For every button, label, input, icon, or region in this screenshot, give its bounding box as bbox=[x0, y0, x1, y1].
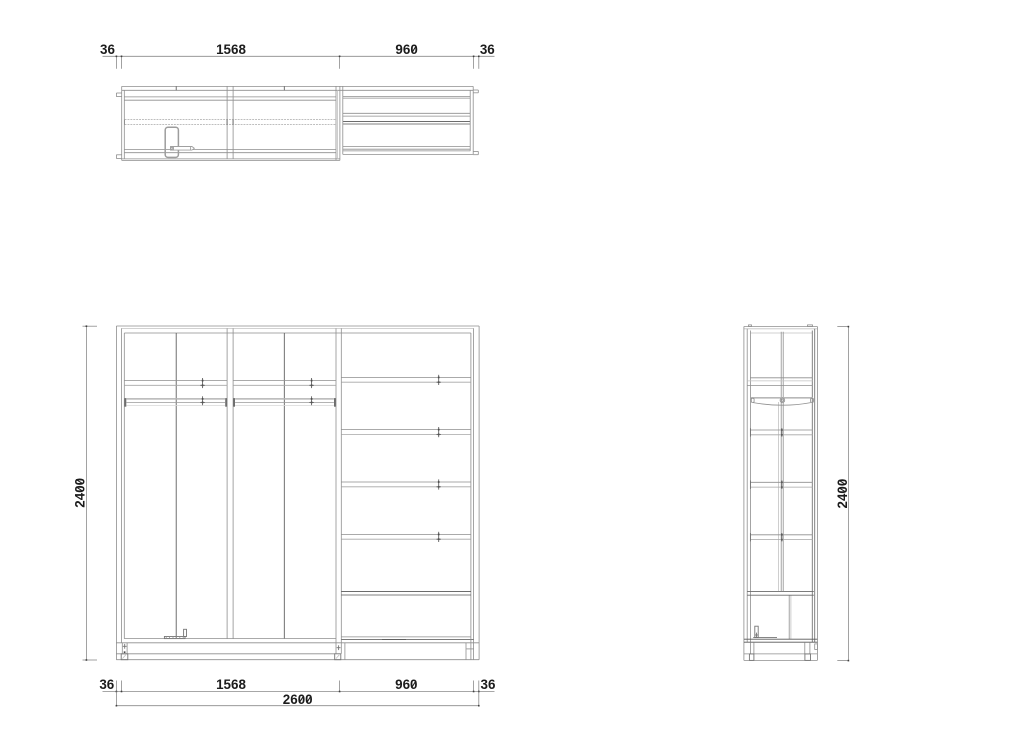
svg-text:36: 36 bbox=[99, 677, 114, 692]
svg-text:36: 36 bbox=[481, 677, 496, 692]
svg-text:960: 960 bbox=[395, 677, 417, 692]
svg-text:1568: 1568 bbox=[216, 677, 246, 692]
svg-text:36: 36 bbox=[100, 42, 115, 57]
svg-text:960: 960 bbox=[395, 42, 417, 57]
svg-text:36: 36 bbox=[480, 42, 495, 57]
svg-text:1568: 1568 bbox=[216, 42, 246, 57]
